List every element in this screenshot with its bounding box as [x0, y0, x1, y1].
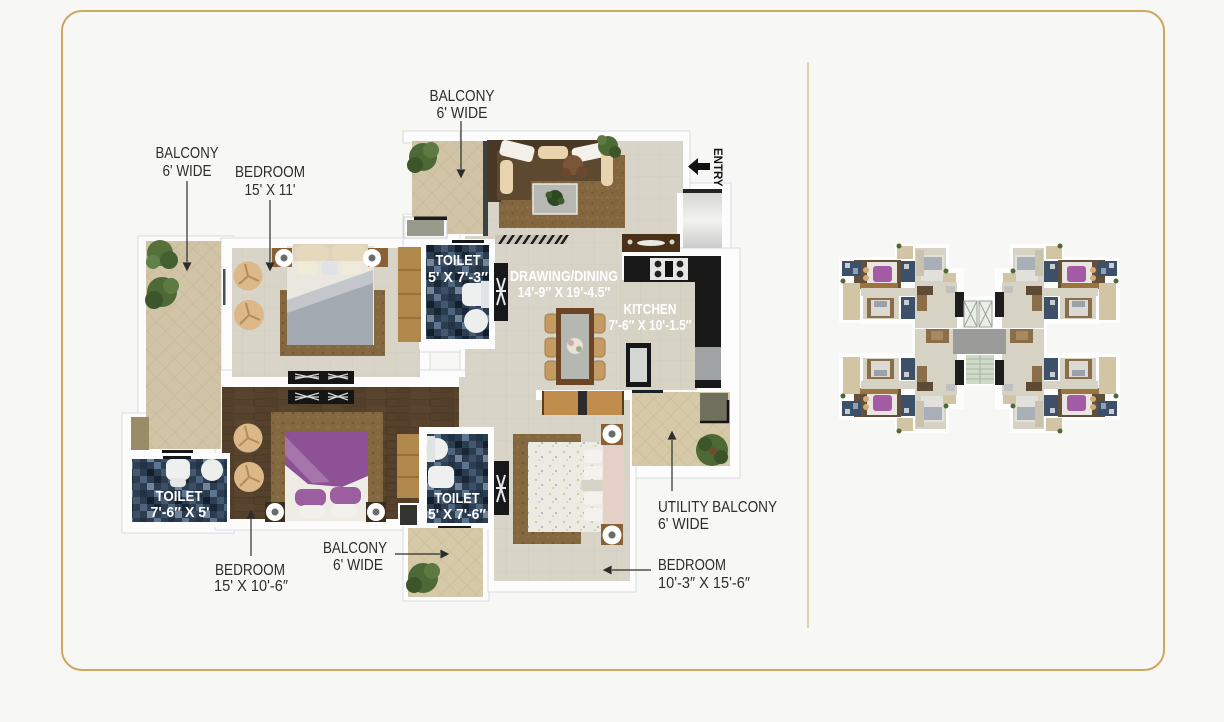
svg-text:7'-6″ X 10'-1.5″: 7'-6″ X 10'-1.5″	[609, 317, 692, 334]
svg-text:BEDROOM: BEDROOM	[215, 562, 285, 579]
svg-text:15' X 10'-6″: 15' X 10'-6″	[214, 578, 288, 595]
svg-text:BEDROOM: BEDROOM	[658, 557, 726, 574]
svg-text:10'-3″ X 15'-6″: 10'-3″ X 15'-6″	[658, 575, 750, 592]
svg-text:15' X 11': 15' X 11'	[245, 182, 296, 199]
svg-text:5' X 7'-6″: 5' X 7'-6″	[428, 506, 486, 523]
svg-text:ENTRY: ENTRY	[711, 148, 723, 187]
svg-text:BALCONY: BALCONY	[430, 88, 495, 105]
svg-text:BALCONY: BALCONY	[323, 540, 387, 557]
svg-text:TOILET: TOILET	[435, 490, 480, 507]
svg-text:6' WIDE: 6' WIDE	[163, 163, 212, 180]
svg-text:DRAWING/DINING: DRAWING/DINING	[510, 268, 618, 285]
svg-text:UTILITY BALCONY: UTILITY BALCONY	[658, 499, 777, 516]
svg-text:6' WIDE: 6' WIDE	[437, 105, 488, 122]
svg-text:6' WIDE: 6' WIDE	[658, 516, 709, 533]
svg-text:6' WIDE: 6' WIDE	[333, 557, 383, 574]
svg-text:5' X 7'-3″: 5' X 7'-3″	[428, 269, 488, 286]
svg-text:7'-6″ X 5': 7'-6″ X 5'	[151, 504, 210, 521]
svg-text:KITCHEN: KITCHEN	[624, 301, 677, 318]
svg-text:14'-9″ X 19'-4.5″: 14'-9″ X 19'-4.5″	[518, 284, 611, 301]
svg-text:TOILET: TOILET	[436, 252, 481, 269]
svg-text:TOILET: TOILET	[156, 488, 203, 505]
svg-text:BALCONY: BALCONY	[156, 145, 219, 162]
svg-text:BEDROOM: BEDROOM	[235, 164, 305, 181]
